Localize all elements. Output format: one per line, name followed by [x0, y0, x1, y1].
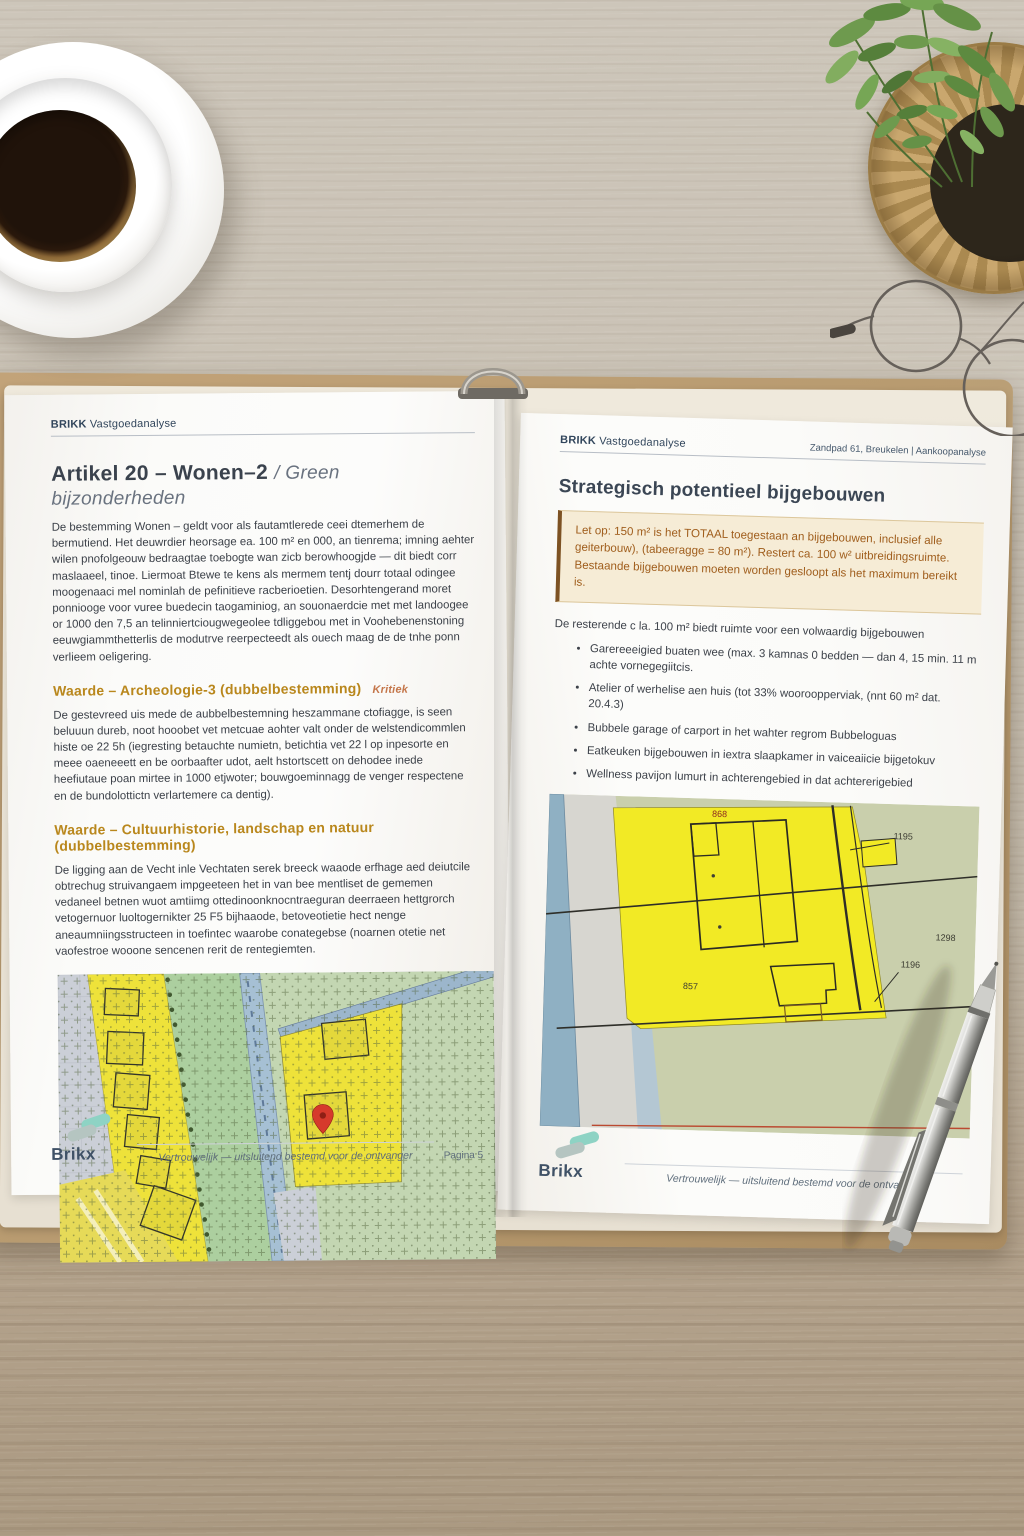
- list-item: Wellness pavijon lumurt in achterengebie…: [586, 766, 976, 794]
- brikx-logo-icon: [65, 1116, 125, 1143]
- binder-clasp: [448, 350, 538, 402]
- glasses-ear-tip: [830, 323, 857, 339]
- logo-pill-grey: [66, 1123, 98, 1143]
- brand: BRIKK Vastgoedanalyse: [51, 418, 177, 431]
- article-title-main: Artikel 20 – Wonen–2: [51, 461, 268, 486]
- logo-wordmark: Brikx: [538, 1161, 625, 1184]
- archeologie-paragraph: De gestevreed uis mede de aubbelbestemni…: [53, 704, 478, 805]
- list-item: Eatkeuken bijgebouwen in iextra slaapkam…: [587, 743, 977, 771]
- header-meta: Zandpad 61, Breukelen | Aankoopanalyse: [810, 442, 986, 458]
- brand-rest: Vastgoedanalyse: [599, 435, 686, 450]
- section-title: Strategisch potentieel bijgebouwen: [558, 476, 984, 511]
- parcel-number: 857: [683, 981, 698, 991]
- ballpoint-pen: [842, 946, 1024, 1306]
- left-page-header: BRIKK Vastgoedanalyse: [51, 415, 475, 437]
- desk-scene-photo: { "left_page": { "header": { "brand_bold…: [0, 0, 1024, 1536]
- list-item: Bubbele garage of carport in het wahter …: [587, 719, 977, 747]
- brand-bold: BRIKK: [51, 418, 87, 430]
- heading-text: Waarde – Cultuurhistorie, landschap en n…: [54, 819, 374, 854]
- left-page-footer: Brikx Vertrouwelijk — uitsluitend bestem…: [51, 1113, 483, 1165]
- book-spine-shadow: [494, 395, 528, 1217]
- left-page: BRIKK Vastgoedanalyse Artikel 20 – Wonen…: [5, 391, 512, 1195]
- right-page-header: BRIKK Vastgoedanalyse Zandpad 61, Breuke…: [560, 434, 986, 465]
- list-item: Garereeeigied buaten wee (max. 3 kamnas …: [589, 641, 980, 685]
- remaining-space-intro: De resterende c la. 100 m² biedt ruimte …: [554, 616, 980, 645]
- confidentiality-note: Vertrouwelijk — uitsluitend bestemd voor…: [137, 1141, 434, 1164]
- brand: BRIKK Vastgoedanalyse: [560, 434, 686, 450]
- brikx-logo: Brikx: [538, 1133, 625, 1184]
- plant-leaves: [821, 0, 1020, 158]
- page-number: Pagina 5: [434, 1143, 484, 1161]
- parcel-number: 868: [712, 809, 727, 819]
- section-heading-cultuurhistorie: Waarde – Cultuurhistorie, landschap en n…: [54, 818, 478, 854]
- section-heading-archeologie: Waarde – Archeologie-3 (dubbelbestemming…: [53, 679, 477, 699]
- logo-wordmark: Brikx: [51, 1144, 137, 1165]
- potted-plant: [792, 0, 1024, 272]
- brikx-logo: Brikx: [51, 1116, 137, 1165]
- intro-paragraph: De bestemming Wonen – geldt voor als fau…: [52, 516, 477, 665]
- logo-pill-grey: [554, 1141, 586, 1160]
- brikx-logo-icon: [553, 1133, 614, 1161]
- list-item: Atelier of werhelise aen huis (tot 33% w…: [588, 680, 979, 724]
- brand-rest: Vastgoedanalyse: [90, 418, 177, 431]
- options-list: Garereeeigied buaten wee (max. 3 kamnas …: [550, 640, 980, 794]
- map-annex-parcel: [861, 839, 897, 867]
- cultuurhistorie-paragraph: De ligging aan de Vecht inle Vechtaten s…: [55, 859, 480, 960]
- brand-bold: BRIKK: [560, 434, 596, 447]
- article-title: Artikel 20 – Wonen–2 / Green bijzonderhe…: [51, 459, 475, 511]
- warning-callout: Let op: 150 m² is het TOTAAL toegestaan …: [555, 510, 984, 614]
- parcel-number: 1298: [935, 932, 955, 943]
- parcel-number: 1195: [893, 831, 913, 842]
- eyeglasses: [830, 256, 1024, 436]
- heading-text: Waarde – Archeologie-3 (dubbelbestemming…: [53, 680, 361, 699]
- kritiek-tag: Kritiek: [372, 683, 408, 695]
